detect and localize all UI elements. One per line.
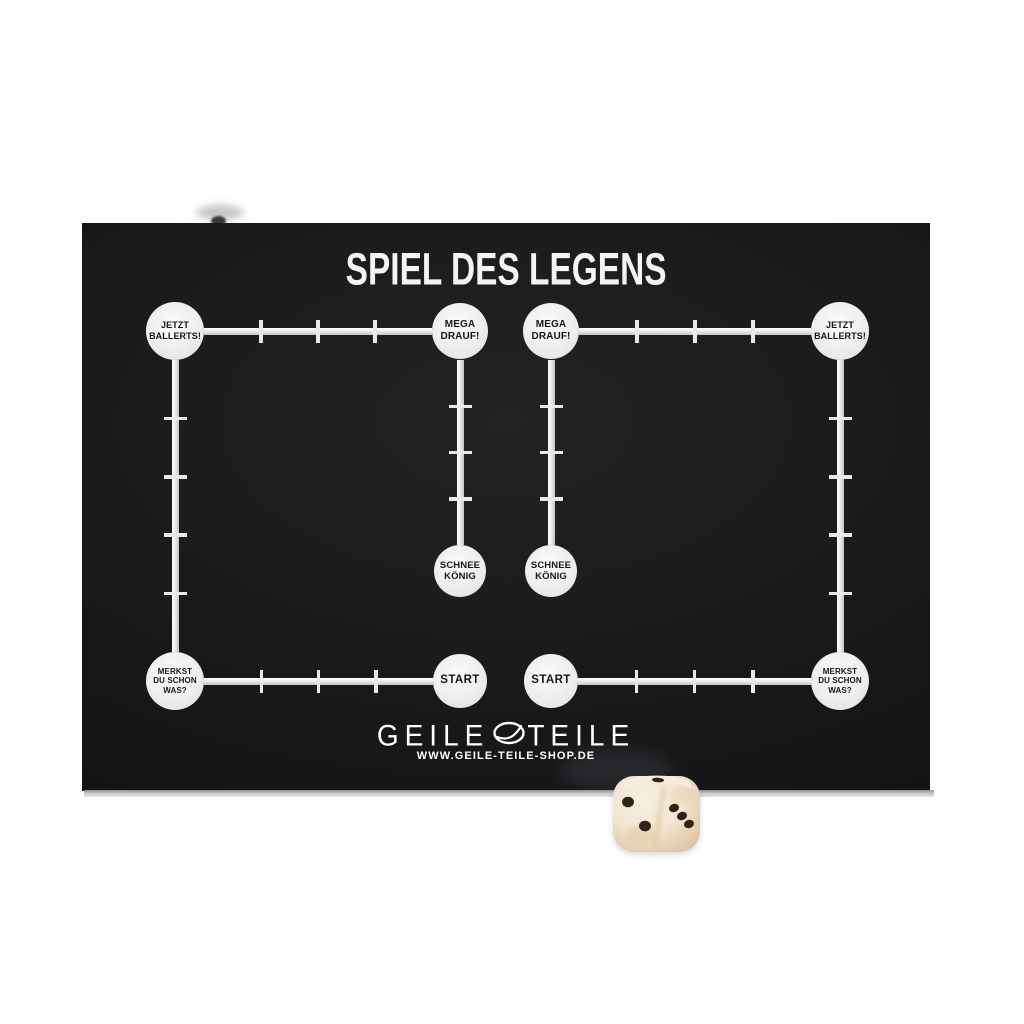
brand-logo: GEILE TEILE	[82, 720, 930, 751]
track-tick	[540, 451, 563, 455]
track-tick	[164, 592, 187, 596]
track-tick	[449, 497, 472, 501]
track-tick	[164, 533, 187, 537]
track-tick	[449, 451, 472, 455]
track-node-merkst-du-right: MERKST DU SCHON WAS?	[811, 652, 869, 710]
track-tick	[259, 320, 263, 343]
dice	[611, 771, 703, 855]
track-tick	[829, 475, 852, 479]
game-board: SPIEL DES LEGENS JETZT BALLERTS! MEGA DR…	[82, 223, 930, 791]
track-tick	[374, 670, 378, 693]
track-tick	[635, 670, 639, 693]
dice-pip-front	[622, 797, 634, 808]
track-node-mega-drauf-right: MEGA DRAUF!	[523, 303, 579, 359]
track-tick	[693, 320, 697, 343]
track-node-schnee-koenig-right: SCHNEE KÖNIG	[525, 545, 577, 597]
track-node-start-left: START	[433, 654, 487, 708]
track-tick	[829, 592, 852, 596]
track-tick	[693, 670, 697, 693]
brand-logo-left: GEILE	[377, 721, 489, 751]
track-tick	[316, 320, 320, 343]
track-tick	[373, 320, 377, 343]
track-tick	[540, 497, 563, 501]
track-node-jetzt-ballerts-right: JETZT BALLERTS!	[811, 302, 869, 360]
track-tick	[164, 475, 187, 479]
brand-logo-right: TEILE	[529, 721, 635, 751]
track-layer	[82, 223, 930, 791]
track-node-start-right: START	[524, 654, 578, 708]
track-tick	[635, 320, 639, 343]
track-tick	[164, 417, 187, 421]
track-line	[172, 360, 179, 652]
brand-logo-oval-swoosh-icon	[491, 720, 527, 751]
track-node-merkst-du-left: MERKST DU SCHON WAS?	[146, 652, 204, 710]
track-node-mega-drauf-left: MEGA DRAUF!	[432, 303, 488, 359]
track-tick	[829, 417, 852, 421]
track-line	[837, 360, 844, 652]
board-edge	[84, 790, 934, 797]
track-tick	[751, 670, 755, 693]
track-tick	[260, 670, 264, 693]
track-node-schnee-koenig-left: SCHNEE KÖNIG	[434, 545, 486, 597]
track-node-jetzt-ballerts-left: JETZT BALLERTS!	[146, 302, 204, 360]
dice-pip-front	[639, 821, 651, 832]
product-photo: SPIEL DES LEGENS JETZT BALLERTS! MEGA DR…	[0, 0, 1024, 1024]
track-tick	[449, 405, 472, 409]
track-tick	[540, 405, 563, 409]
track-tick	[751, 320, 755, 343]
track-tick	[829, 533, 852, 537]
track-tick	[317, 670, 321, 693]
brand-website: WWW.GEILE-TEILE-SHOP.DE	[82, 750, 930, 762]
